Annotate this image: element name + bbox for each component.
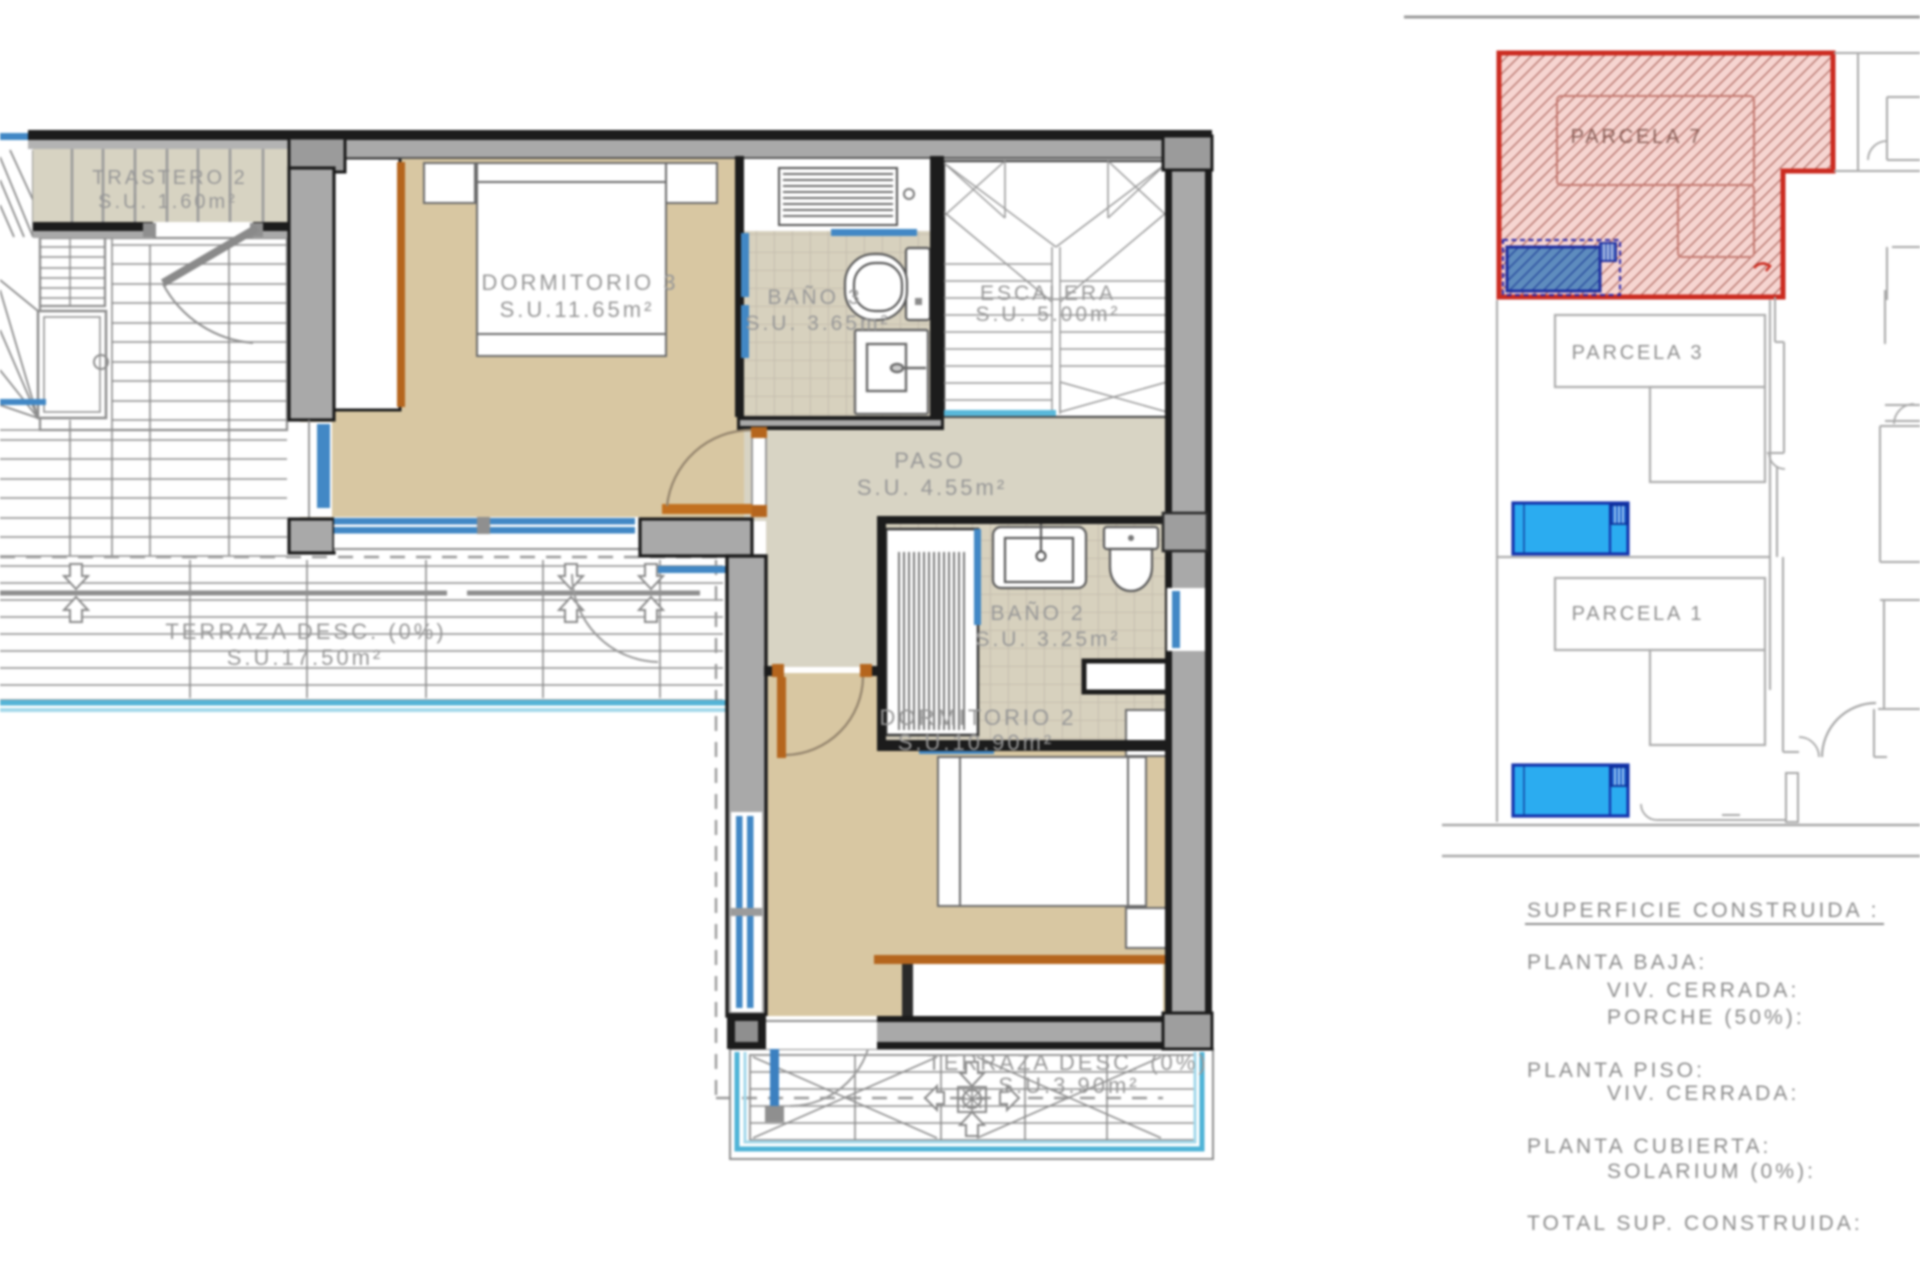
svg-text:VIV. CERRADA:: VIV. CERRADA:	[1607, 979, 1799, 1002]
svg-text:ESCALERA: ESCALERA	[980, 282, 1116, 305]
svg-text:S.U.17.50m²: S.U.17.50m²	[227, 645, 384, 670]
svg-text:S.U.3.90m²: S.U.3.90m²	[998, 1073, 1139, 1098]
svg-text:SOLARIUM (0%):: SOLARIUM (0%):	[1607, 1160, 1816, 1183]
svg-text:DORMITORIO 3: DORMITORIO 3	[482, 270, 679, 295]
svg-text:SUPERFICIE CONSTRUIDA :: SUPERFICIE CONSTRUIDA :	[1527, 899, 1880, 922]
svg-text:S.U. 3.65m²: S.U. 3.65m²	[745, 312, 890, 335]
svg-text:DORMITORIO 2: DORMITORIO 2	[880, 705, 1077, 730]
svg-text:PLANTA BAJA:: PLANTA BAJA:	[1527, 951, 1707, 974]
svg-text:TERRAZA DESC. (0%): TERRAZA DESC. (0%)	[165, 619, 446, 644]
svg-text:BAÑO 2: BAÑO 2	[990, 601, 1085, 625]
svg-text:S.U.11.65m²: S.U.11.65m²	[500, 297, 655, 322]
svg-text:TRASTERO 2: TRASTERO 2	[92, 167, 248, 189]
svg-text:S.U. 1.60m²: S.U. 1.60m²	[98, 191, 238, 213]
svg-text:PARCELA 1: PARCELA 1	[1572, 603, 1705, 625]
svg-text:S.U. 5.00m²: S.U. 5.00m²	[975, 303, 1120, 326]
svg-text:S.U. 4.55m²: S.U. 4.55m²	[857, 475, 1007, 500]
svg-text:PLANTA PISO:: PLANTA PISO:	[1527, 1059, 1705, 1082]
svg-text:BAÑO 3: BAÑO 3	[767, 285, 862, 309]
svg-text:PARCELA 3: PARCELA 3	[1572, 342, 1705, 364]
svg-text:PLANTA CUBIERTA:: PLANTA CUBIERTA:	[1527, 1135, 1772, 1158]
svg-text:S.U. 3.25m²: S.U. 3.25m²	[975, 628, 1120, 651]
svg-text:S.U.10.90m²: S.U.10.90m²	[898, 730, 1055, 755]
svg-text:PARCELA 7: PARCELA 7	[1571, 126, 1704, 148]
svg-text:PASO: PASO	[894, 448, 966, 473]
svg-text:VIV. CERRADA:: VIV. CERRADA:	[1607, 1082, 1799, 1105]
svg-text:PORCHE (50%):: PORCHE (50%):	[1607, 1006, 1805, 1029]
svg-text:TERRAZA DESC. (0%): TERRAZA DESC. (0%)	[927, 1050, 1208, 1075]
svg-text:TOTAL SUP. CONSTRUIDA:: TOTAL SUP. CONSTRUIDA:	[1527, 1212, 1863, 1235]
